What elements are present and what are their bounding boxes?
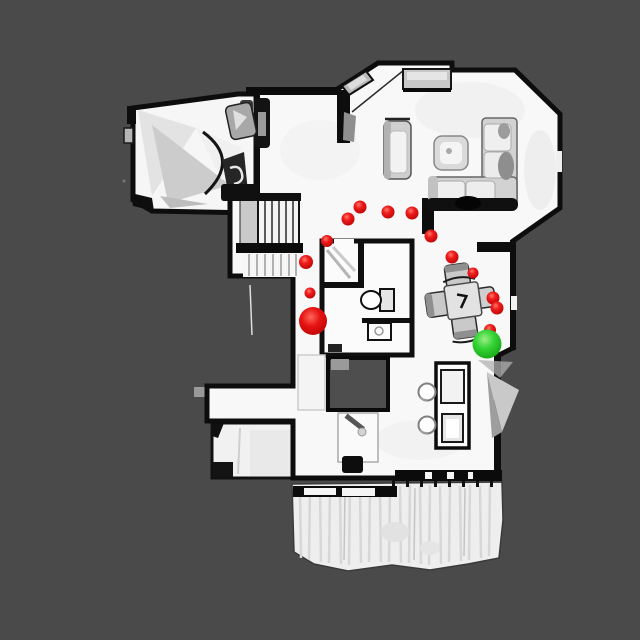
floor-plan-canvas [0,0,640,640]
sink [368,323,391,340]
window-slit [511,296,517,310]
bathroom [322,239,412,355]
sofa-pillow [498,123,510,139]
stair-landing [240,200,258,244]
stair-rail-band [236,243,303,253]
scan-viewport [0,0,640,640]
stair-newel-furniture [221,184,258,201]
waypoint-dot [468,268,479,279]
armchair [384,119,411,179]
waypoint-dot [299,255,313,269]
sofa-throw [498,152,514,180]
waypoint-dot [354,201,367,214]
waypoint-dot [406,207,419,220]
waypoint-dot [321,235,333,247]
divider-blinds [343,112,356,142]
dining-north-wall [477,242,514,252]
toilet [361,289,394,311]
waypoint-dot [491,302,504,315]
foyer-exterior-bit [124,128,133,143]
counter-west [298,355,325,410]
waypoint-dot [425,230,438,243]
waypoint-dot [342,213,355,226]
start-marker [299,307,327,335]
waypoint-dot [382,206,395,219]
goal-marker [473,330,502,359]
waypoint-dot [446,251,459,264]
ottoman [434,136,468,170]
window-slit [556,151,562,172]
deck-wear-mark [420,541,440,555]
bathroom-door-gap [334,239,354,246]
deck-wear-mark [381,522,409,542]
stair-lower-flight [243,253,299,277]
lower-left-room [212,423,294,478]
waypoint-dot [305,288,316,299]
